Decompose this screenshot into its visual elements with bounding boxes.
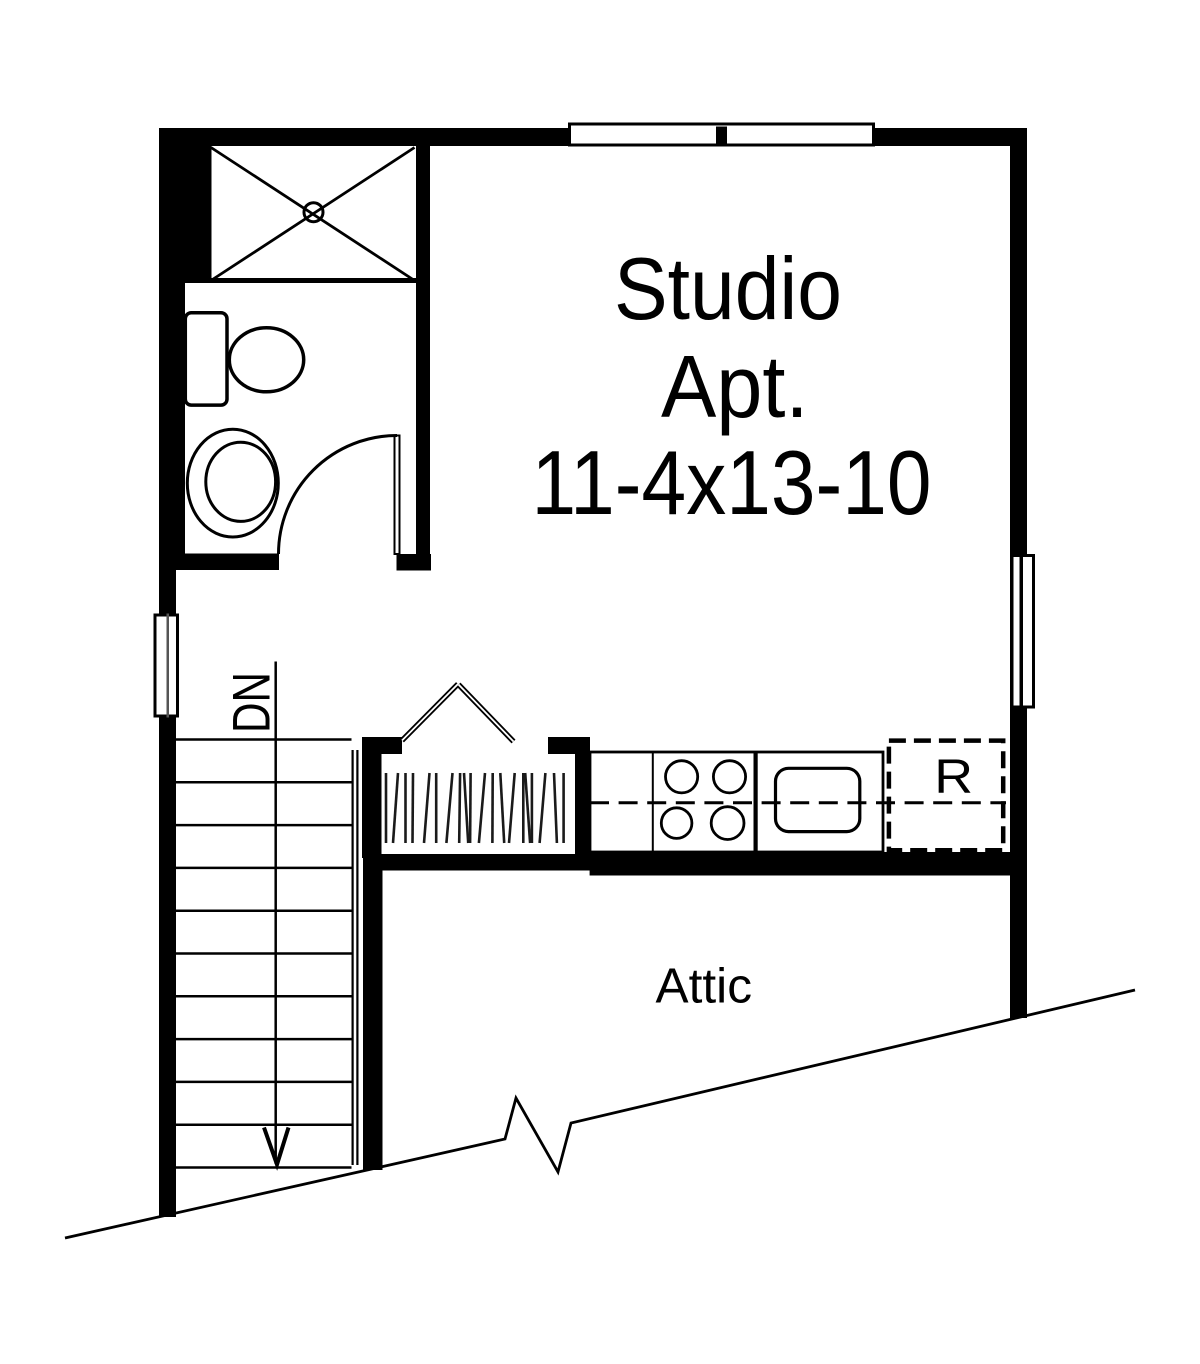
svg-text:Apt.: Apt.	[661, 337, 809, 436]
svg-text:DN: DN	[223, 672, 282, 733]
svg-text:Studio: Studio	[614, 239, 842, 338]
svg-text:R: R	[934, 750, 973, 804]
svg-text:Attic: Attic	[656, 958, 753, 1013]
svg-text:11-4x13-10: 11-4x13-10	[532, 433, 932, 534]
